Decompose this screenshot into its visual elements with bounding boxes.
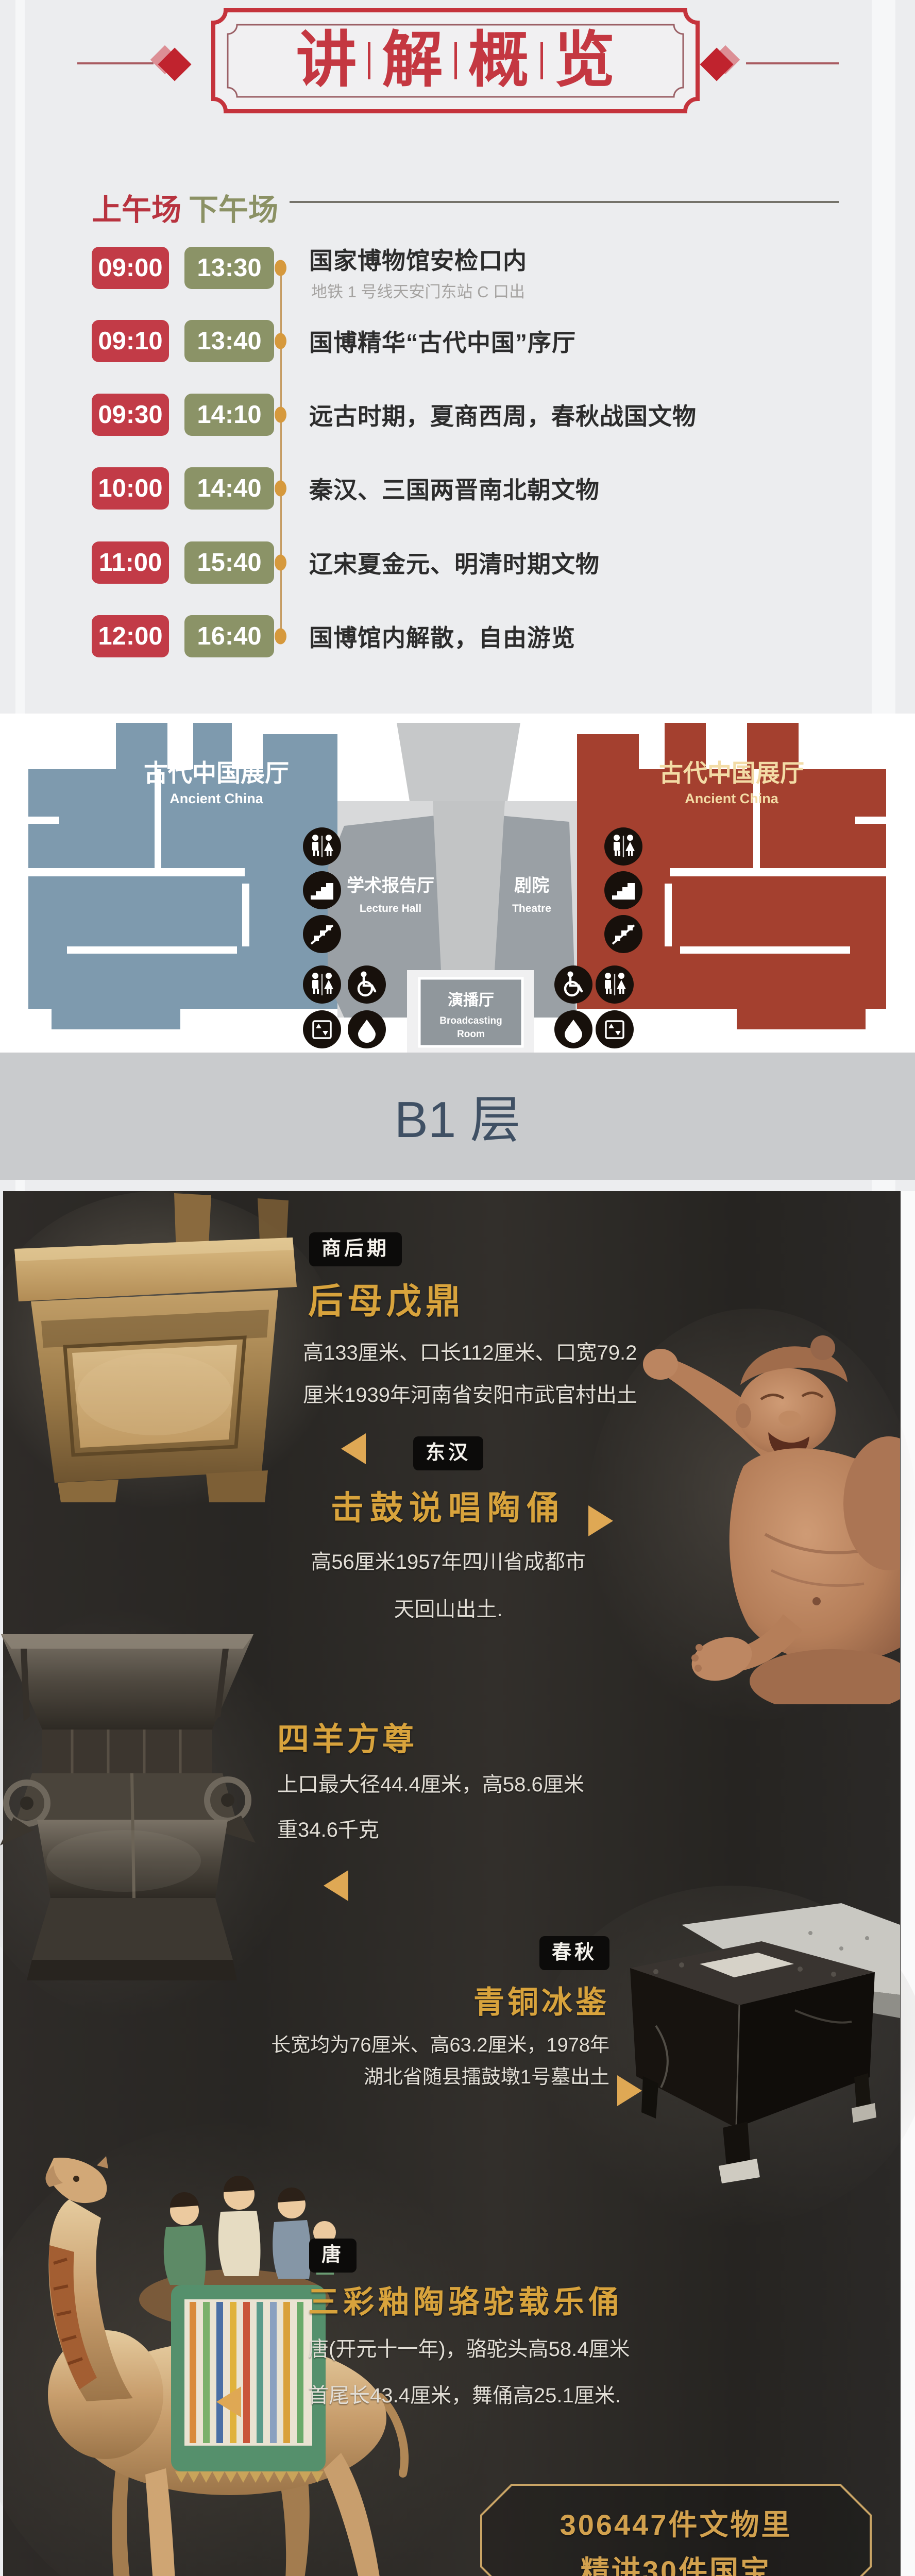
title-diamond-right bbox=[705, 49, 736, 80]
artifact-desc: 唐(开元十一年)，骆驼头高58.4厘米 首尾长43.4厘米，舞俑高25.1厘米. bbox=[308, 2326, 630, 2419]
label-west-hall-en: Ancient China bbox=[170, 791, 263, 806]
schedule-row: 09:10 13:40 国博精华“古代中国”序厅 bbox=[0, 320, 915, 362]
label-lecture-en: Lecture Hall bbox=[360, 903, 421, 914]
artifact-desc-line: 厘米1939年河南省安阳市武官村出土 bbox=[303, 1374, 637, 1416]
schedule-stop-subtitle: 地铁 1 号线天安门东站 C 口出 bbox=[311, 279, 525, 302]
artifact-desc-line: 高56厘米1957年四川省成都市 bbox=[242, 1538, 654, 1586]
artifact-desc: 长宽均为76厘米、高63.2厘米，1978年 湖北省随县擂鼓墩1号墓出土 bbox=[146, 2029, 609, 2093]
label-broadcasting-en1: Broadcasting bbox=[439, 1015, 502, 1026]
timeline-dot bbox=[275, 555, 286, 571]
time-badge-pm: 16:40 bbox=[184, 615, 274, 657]
stairs-icon bbox=[303, 871, 341, 909]
time-badge-pm: 13:30 bbox=[184, 247, 274, 289]
map-broadcast-stem bbox=[433, 801, 505, 970]
title-char: 概 bbox=[468, 30, 529, 91]
title-char: 解 bbox=[382, 30, 443, 91]
time-badge-pm: 15:40 bbox=[184, 541, 274, 584]
label-lecture-zh: 学术报告厅 bbox=[347, 875, 434, 895]
label-west-hall-zh: 古代中国展厅 bbox=[144, 759, 289, 787]
afternoon-session-label: 下午场 bbox=[189, 185, 278, 229]
schedule-row: 10:00 14:40 秦汉、三国两晋南北朝文物 bbox=[0, 467, 915, 510]
dynasty-tag: 唐 bbox=[309, 2239, 357, 2273]
artifact-title: 青铜冰鉴 bbox=[146, 1977, 609, 2022]
footer-headline-1: 306447件文物里 bbox=[479, 2502, 873, 2544]
dynasty-tag: 东汉 bbox=[413, 1436, 483, 1470]
timeline-dot bbox=[275, 629, 286, 645]
pointer-triangle bbox=[216, 2386, 241, 2417]
timeline-dot bbox=[275, 481, 286, 497]
label-broadcasting-en2: Room bbox=[457, 1029, 485, 1040]
escalator-icon bbox=[303, 915, 341, 953]
restroom-icon bbox=[604, 827, 642, 866]
time-badge-am: 09:00 bbox=[92, 247, 169, 289]
stairs-icon bbox=[604, 871, 642, 909]
title-deco-line-left bbox=[77, 62, 154, 64]
panel-right-margin bbox=[901, 1191, 915, 2576]
schedule-stop-title: 远古时期，夏商西周，春秋战国文物 bbox=[309, 398, 697, 432]
time-badge-pm: 14:10 bbox=[184, 394, 274, 436]
artifact-desc-line: 重34.6千克 bbox=[277, 1807, 584, 1853]
pointer-triangle bbox=[588, 1505, 613, 1536]
timeline-dot bbox=[275, 407, 286, 423]
dynasty-tag-row: 唐 bbox=[309, 2239, 357, 2273]
artifact-desc: 上口最大径44.4厘米，高58.6厘米 重34.6千克 bbox=[277, 1762, 584, 1853]
label-theatre-zh: 剧院 bbox=[514, 875, 549, 895]
restroom-icon bbox=[596, 965, 634, 1004]
dynasty-tag-row: 东汉 bbox=[242, 1436, 654, 1470]
label-theatre-en: Theatre bbox=[512, 903, 551, 914]
artifact-text-block: 春秋 青铜冰鉴 长宽均为76厘米、高63.2厘米，1978年 湖北省随县擂鼓墩1… bbox=[146, 1936, 609, 2093]
elevator-icon bbox=[596, 1010, 634, 1048]
drinking-water-icon bbox=[348, 1010, 386, 1048]
escalator-icon bbox=[604, 915, 642, 953]
title-deco-line-right bbox=[746, 62, 839, 64]
label-broadcasting-zh: 演播厅 bbox=[448, 992, 494, 1009]
artifact-desc-line: 上口最大径44.4厘米，高58.6厘米 bbox=[277, 1762, 584, 1807]
time-badge-am: 09:30 bbox=[92, 394, 169, 436]
artifact-title: 三彩釉陶骆驼载乐俑 bbox=[308, 2277, 623, 2322]
footer-headline-2: 精讲30件国宝 bbox=[479, 2548, 873, 2576]
pointer-triangle bbox=[617, 2075, 642, 2106]
dynasty-tag-row: 春秋 bbox=[146, 1936, 609, 1970]
time-badge-am: 09:10 bbox=[92, 320, 169, 362]
timeline-dot bbox=[275, 260, 286, 276]
dynasty-tag: 商后期 bbox=[309, 1232, 402, 1266]
morning-session-label: 上午场 bbox=[92, 185, 181, 229]
schedule-stop-title: 国家博物馆安检口内 bbox=[309, 242, 527, 276]
schedule-stop-title: 国博馆内解散，自由游览 bbox=[309, 619, 575, 653]
artifact-desc-line: 高133厘米、口长112厘米、口宽79.2 bbox=[303, 1332, 637, 1374]
artifact-desc: 高133厘米、口长112厘米、口宽79.2 厘米1939年河南省安阳市武官村出土 bbox=[303, 1332, 637, 1416]
floor-label: B1 层 bbox=[394, 1091, 520, 1148]
schedule-row: 09:30 14:10 远古时期，夏商西周，春秋战国文物 bbox=[0, 394, 915, 436]
schedule-stop-title: 秦汉、三国两晋南北朝文物 bbox=[309, 471, 600, 505]
title-diamond-left bbox=[155, 49, 185, 80]
time-badge-pm: 13:40 bbox=[184, 320, 274, 362]
drinking-water-icon bbox=[554, 1010, 592, 1048]
artifact-desc-line: 首尾长43.4厘米，舞俑高25.1厘米. bbox=[308, 2372, 630, 2419]
schedule-header-rule bbox=[290, 201, 839, 203]
artifact-desc-line: 唐(开元十一年)，骆驼头高58.4厘米 bbox=[308, 2326, 630, 2372]
time-badge-pm: 14:40 bbox=[184, 467, 274, 510]
wheelchair-icon bbox=[348, 965, 386, 1004]
title-separator bbox=[368, 42, 370, 79]
title-separator bbox=[454, 42, 457, 79]
pointer-triangle bbox=[324, 1870, 348, 1901]
elevator-icon bbox=[303, 1010, 341, 1048]
title-separator bbox=[540, 42, 543, 79]
artifact-desc-line: 长宽均为76厘米、高63.2厘米，1978年 bbox=[146, 2029, 609, 2061]
time-badge-am: 12:00 bbox=[92, 615, 169, 657]
artifact-desc-line: 湖北省随县擂鼓墩1号墓出土 bbox=[146, 2061, 609, 2093]
floor-map: 古代中国展厅 Ancient China 古代中国展厅 Ancient Chin… bbox=[0, 714, 915, 1180]
title-char: 览 bbox=[554, 30, 615, 91]
label-east-hall-zh: 古代中国展厅 bbox=[659, 759, 804, 787]
restroom-icon bbox=[303, 827, 341, 866]
schedule-stop-title: 国博精华“古代中国”序厅 bbox=[309, 324, 576, 358]
schedule-row: 09:00 13:30 国家博物馆安检口内 地铁 1 号线天安门东站 C 口出 bbox=[0, 247, 915, 289]
schedule-row: 11:00 15:40 辽宋夏金元、明清时期文物 bbox=[0, 541, 915, 584]
time-badge-am: 11:00 bbox=[92, 541, 169, 584]
artifact-desc-line: 天回山出土. bbox=[242, 1586, 654, 1633]
dynasty-tag-row: 商后期 bbox=[309, 1232, 402, 1266]
label-east-hall-en: Ancient China bbox=[685, 791, 778, 806]
wheelchair-icon bbox=[554, 965, 592, 1004]
artifact-desc: 高56厘米1957年四川省成都市 天回山出土. bbox=[242, 1538, 654, 1633]
page-title: 讲 解 概 览 bbox=[210, 7, 701, 114]
timeline-dot bbox=[275, 333, 286, 349]
time-badge-am: 10:00 bbox=[92, 467, 169, 510]
artifact-title: 后母戊鼎 bbox=[308, 1273, 465, 1324]
schedule-stop-title: 辽宋夏金元、明清时期文物 bbox=[309, 546, 600, 580]
map-central-stem bbox=[397, 723, 520, 801]
artifact-title: 四羊方尊 bbox=[277, 1713, 417, 1759]
restroom-icon bbox=[303, 965, 341, 1004]
schedule-row: 12:00 16:40 国博馆内解散，自由游览 bbox=[0, 615, 915, 657]
dynasty-tag: 春秋 bbox=[539, 1936, 609, 1970]
title-char: 讲 bbox=[296, 30, 357, 91]
